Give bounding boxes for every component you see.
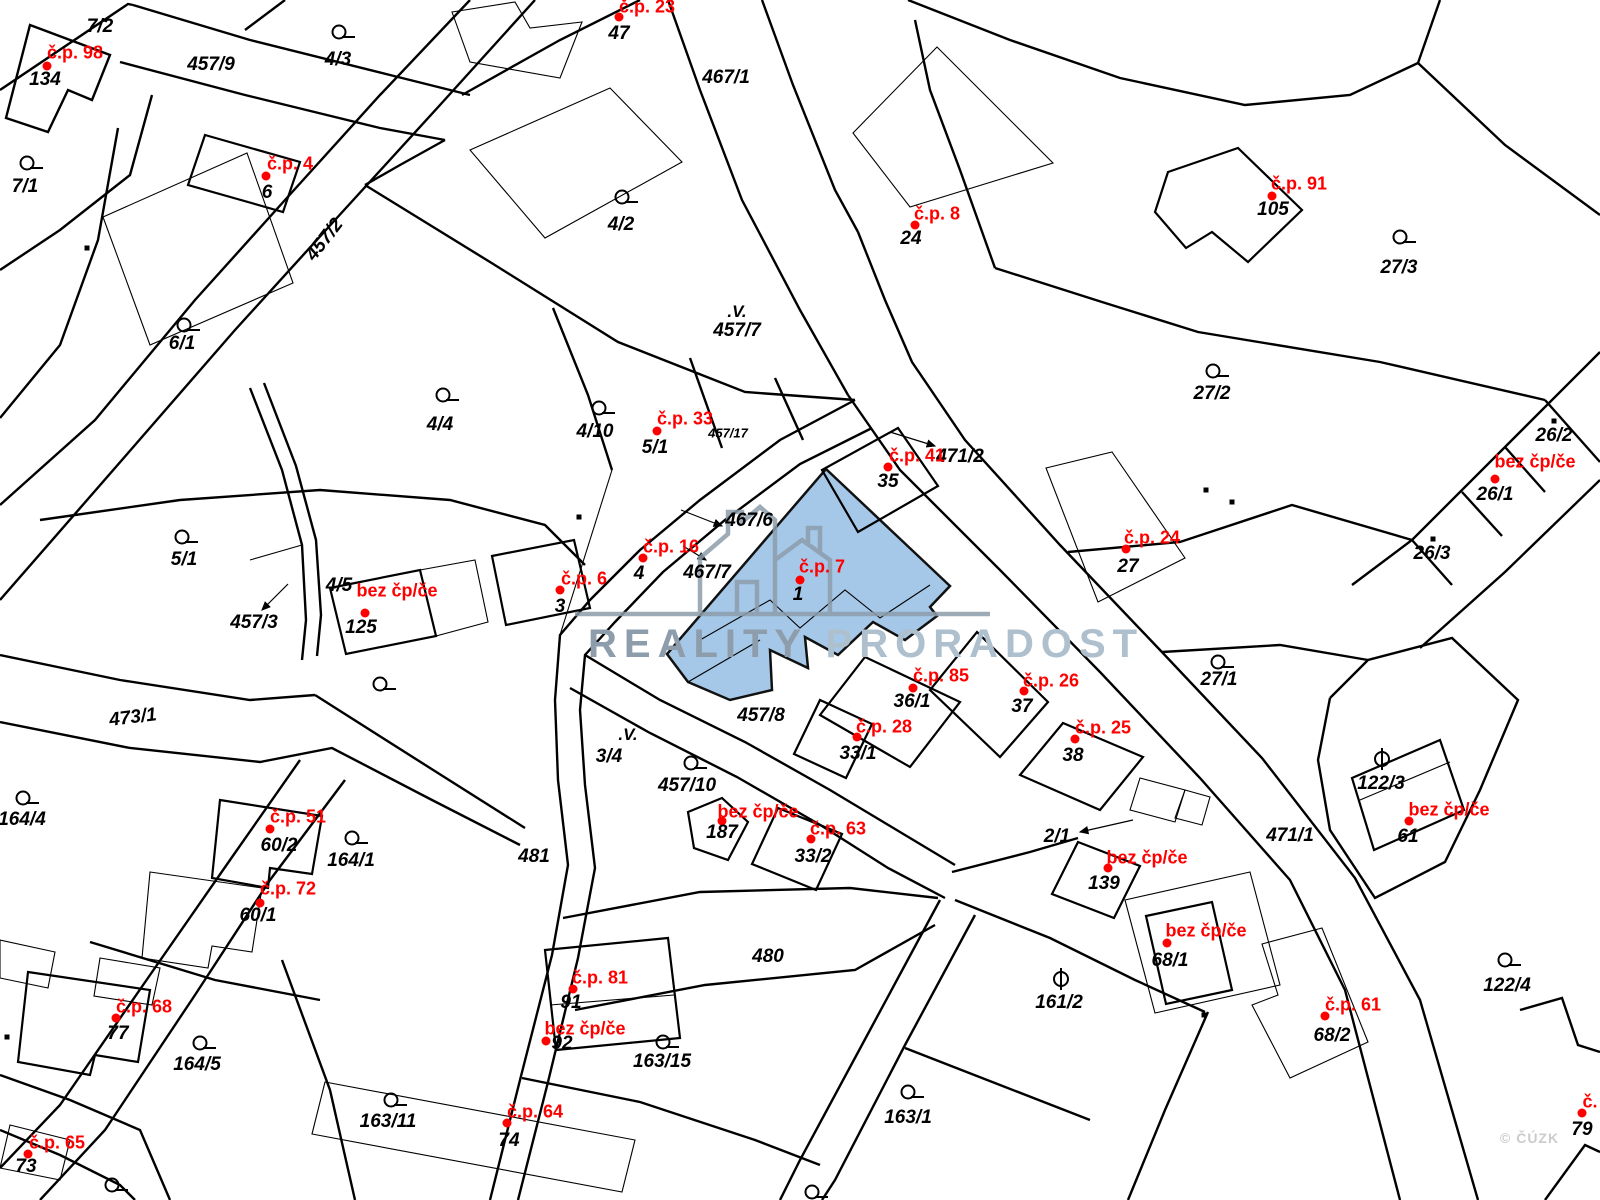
building-point-dot xyxy=(503,1119,512,1128)
building-point-dot xyxy=(1122,545,1131,554)
building-point-dot xyxy=(1104,864,1113,873)
boundary-point-dot xyxy=(1202,1013,1207,1018)
building-point-dot xyxy=(718,817,727,826)
building-point-dot xyxy=(1268,192,1277,201)
building-point-dot xyxy=(1491,475,1500,484)
boundary-point-dot xyxy=(577,515,582,520)
building-point-dot xyxy=(911,221,920,230)
landuse-circle-symbol xyxy=(1499,954,1522,967)
building-point-dot xyxy=(796,576,805,585)
building-point-dot xyxy=(112,1014,121,1023)
boundary-point-dot xyxy=(85,246,90,251)
building-point-dot xyxy=(256,899,265,908)
building-point-dot xyxy=(542,1037,551,1046)
label-pointer-arrow xyxy=(262,584,288,610)
landuse-theta-symbol xyxy=(1054,968,1068,990)
building-point-dot xyxy=(1321,1012,1330,1021)
building-point-dot xyxy=(1578,1109,1587,1118)
building-point-dot xyxy=(262,172,271,181)
landuse-circle-symbol xyxy=(593,402,616,415)
label-pointer-arrow xyxy=(681,510,722,526)
copyright-watermark: © ČÚZK xyxy=(1500,1130,1559,1146)
landuse-circle-symbol xyxy=(685,757,708,770)
landuse-circle-symbol xyxy=(437,389,460,402)
landuse-circle-symbol xyxy=(385,1094,408,1107)
building-point-dot xyxy=(909,684,918,693)
building-point-dot xyxy=(639,554,648,563)
landuse-circle-symbol xyxy=(806,1186,829,1199)
building-point-dot xyxy=(615,13,624,22)
building-point-dot xyxy=(853,733,862,742)
watermark-brand-primary: REALITY xyxy=(588,622,807,666)
building-point-dot xyxy=(361,609,370,618)
building-point-dot xyxy=(556,586,565,595)
landuse-circle-symbol xyxy=(17,792,40,805)
landuse-circle-symbol xyxy=(1212,656,1235,669)
building-point-dot xyxy=(1071,735,1080,744)
landuse-circle-symbol xyxy=(106,1179,129,1192)
parcel-boundaries xyxy=(0,0,1600,1200)
boundary-point-dot xyxy=(1552,419,1557,424)
landuse-circle-symbol xyxy=(346,832,369,845)
building-point-dot xyxy=(24,1150,33,1159)
boundary-point-dot xyxy=(1204,488,1209,493)
boundary-point-dot xyxy=(5,1035,10,1040)
landuse-circle-symbol xyxy=(176,531,199,544)
watermark-text: REALITY PRORADOST xyxy=(588,622,1144,667)
landuse-circle-symbol xyxy=(333,26,356,39)
building-point-dot xyxy=(807,835,816,844)
building-point-dot xyxy=(1405,817,1414,826)
landuse-circle-symbol xyxy=(1207,365,1230,378)
boundary-point-dot xyxy=(1431,537,1436,542)
label-pointer-arrow xyxy=(1080,820,1133,832)
building-point-dot xyxy=(1163,939,1172,948)
cadastral-map: REALITY PRORADOST © ČÚZK 7/2457/94/31347… xyxy=(0,0,1600,1200)
building-point-dot xyxy=(266,825,275,834)
building-point-dot xyxy=(884,463,893,472)
label-pointer-arrow xyxy=(890,432,935,446)
landuse-circle-symbol xyxy=(194,1037,217,1050)
boundary-point-dot xyxy=(1230,500,1235,505)
building-point-dot xyxy=(1020,687,1029,696)
building-point-dot xyxy=(653,427,662,436)
landuse-circle-symbol xyxy=(374,678,397,691)
watermark-brand-secondary: PRORADOST xyxy=(826,622,1145,666)
building-point-dot xyxy=(569,985,578,994)
landuse-circle-symbol xyxy=(21,157,44,170)
building-point-dot xyxy=(43,62,52,71)
landuse-circle-symbol xyxy=(1394,231,1417,244)
landuse-circle-symbol xyxy=(902,1086,925,1099)
